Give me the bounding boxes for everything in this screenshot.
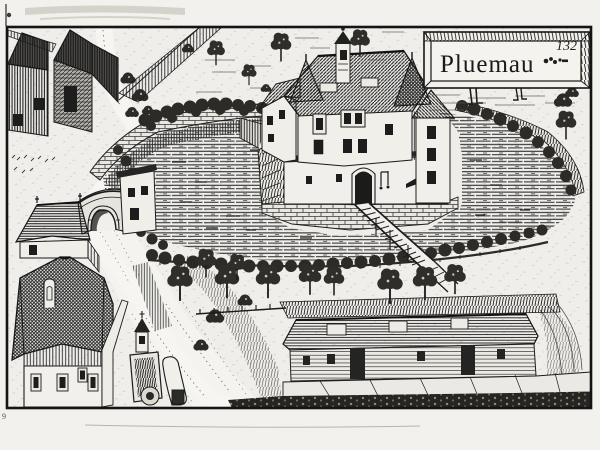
svg-text:9: 9 <box>2 412 6 421</box>
svg-text:132: 132 <box>556 39 577 54</box>
svg-text:Pluemau: Pluemau <box>440 51 535 78</box>
